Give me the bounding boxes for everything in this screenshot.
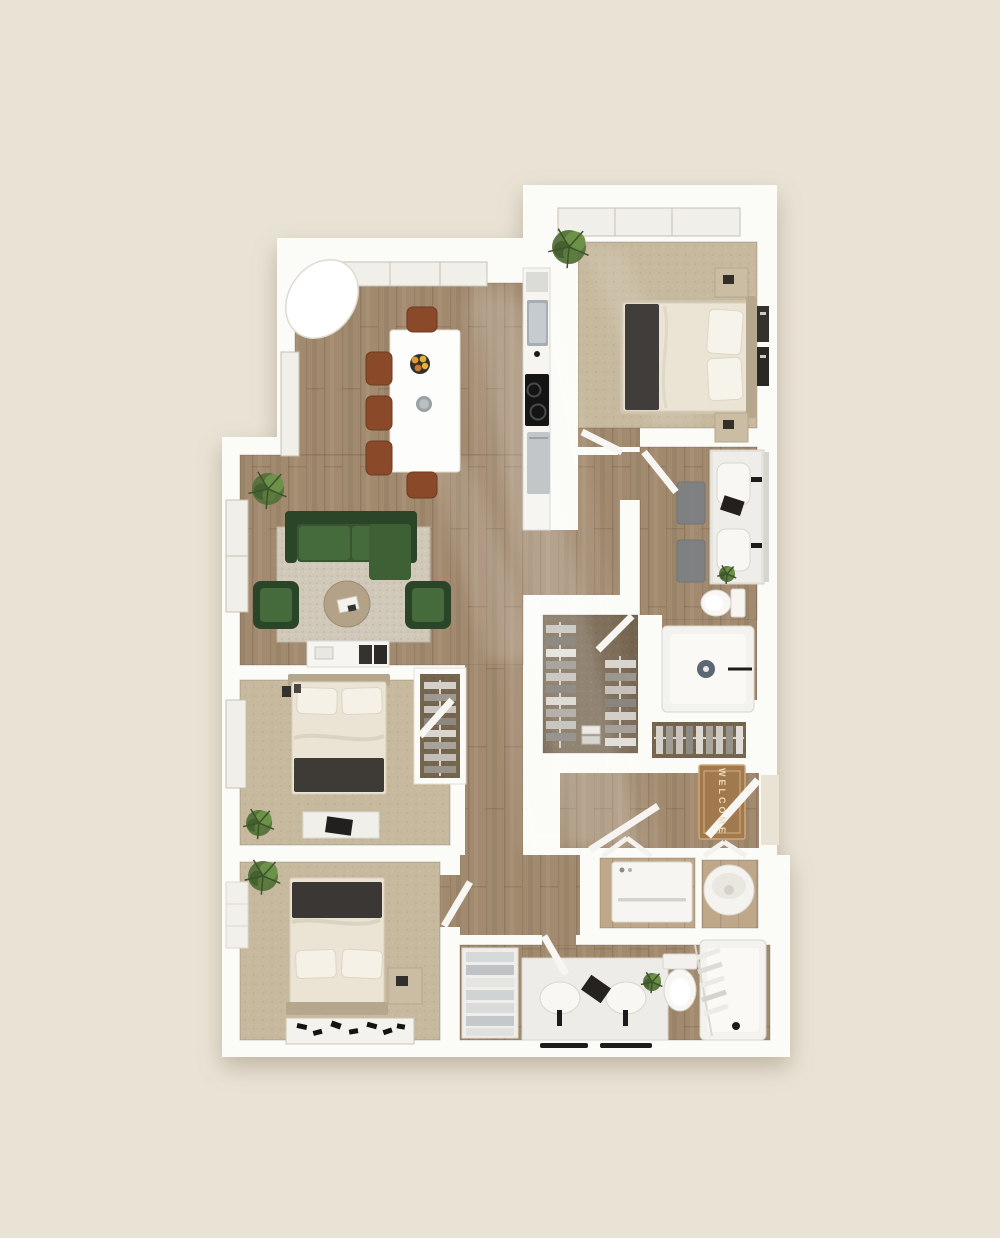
hanging-clothes xyxy=(605,660,636,668)
hanging-clothes xyxy=(605,738,636,746)
washer-control xyxy=(628,868,632,872)
bath2-sink xyxy=(540,982,580,1014)
hanging-clothes xyxy=(686,726,693,754)
bed2-window xyxy=(226,700,246,788)
bath-mat xyxy=(677,482,705,524)
folded-clothes xyxy=(582,726,600,734)
water-heater-cap xyxy=(724,885,734,895)
plant-leaf xyxy=(651,982,652,993)
bath1-faucet xyxy=(751,477,762,482)
bed2-pillow xyxy=(342,687,383,714)
bath1-backsplash xyxy=(764,452,769,582)
hanging-clothes xyxy=(424,742,456,749)
wall-art xyxy=(282,686,291,697)
hanging-clothes xyxy=(546,697,576,705)
dining-chair xyxy=(366,396,392,430)
bath2-tub-faucet xyxy=(732,1022,740,1030)
bath2-toilet-seat xyxy=(670,978,690,1006)
bath2-tub-inner xyxy=(707,948,759,1032)
bed1-pillow xyxy=(707,357,743,401)
hanging-clothes xyxy=(546,637,576,645)
dining-chair xyxy=(407,472,437,498)
bed3-dresser xyxy=(226,882,248,948)
bath2-toilet-tank xyxy=(663,954,697,969)
sofa-arm xyxy=(285,511,297,563)
fruit xyxy=(420,356,427,363)
hanging-clothes xyxy=(605,725,636,733)
floor-plan xyxy=(0,0,1000,1238)
hanging-clothes xyxy=(706,726,713,754)
hanging-clothes xyxy=(546,649,576,657)
sofa-cushion xyxy=(299,526,350,560)
bath1-toilet-seat xyxy=(705,595,723,611)
nightstand-item xyxy=(723,275,734,284)
towel-bar xyxy=(600,1043,652,1048)
bath1-doorway-patch xyxy=(618,452,642,500)
hanging-clothes xyxy=(546,721,576,729)
dishwasher xyxy=(527,432,550,494)
armchair-cushion xyxy=(260,588,292,622)
bath2-faucet xyxy=(623,1010,628,1026)
hanging-clothes xyxy=(666,726,673,754)
towel-stack xyxy=(466,952,514,962)
washer-control xyxy=(620,868,625,873)
washer-door-seam xyxy=(618,898,686,902)
floor-plan-stage: WELCOME xyxy=(0,0,1000,1238)
towel-stack xyxy=(466,990,514,1000)
bed1-blanket xyxy=(625,304,659,410)
sofa-chaise xyxy=(369,524,411,580)
bed1-window xyxy=(558,208,740,236)
table-plate-inner xyxy=(419,399,429,409)
folded-clothes xyxy=(582,736,600,744)
kitchen-side-window xyxy=(281,352,299,456)
armchair-cushion xyxy=(412,588,444,622)
hanging-clothes xyxy=(605,673,636,681)
kitchen-upper-cabinet xyxy=(526,272,548,292)
hanging-clothes xyxy=(676,726,683,754)
wall-art xyxy=(757,306,769,342)
console-speaker xyxy=(374,645,387,664)
dining-chair xyxy=(407,307,437,332)
bed3-pillow xyxy=(341,949,382,979)
fruit xyxy=(422,363,428,369)
console-speaker xyxy=(359,645,372,664)
wall-art xyxy=(757,347,769,386)
towel-bar xyxy=(540,1043,588,1048)
nightstand-item xyxy=(396,976,408,986)
bath1-sink xyxy=(717,529,750,571)
cooktop xyxy=(525,374,549,426)
hanging-clothes xyxy=(716,726,723,754)
towel-stack xyxy=(466,965,514,975)
bed3-headboard xyxy=(286,1002,388,1015)
hanging-clothes xyxy=(546,625,576,633)
plant-leaf xyxy=(726,574,727,584)
hanging-clothes xyxy=(424,754,456,761)
towel-stack xyxy=(466,1003,514,1013)
bed2-pillow xyxy=(297,687,338,714)
wall-art xyxy=(294,684,301,693)
hanging-clothes xyxy=(605,699,636,707)
hanging-clothes xyxy=(546,733,576,741)
towel-stack xyxy=(466,1028,514,1036)
bath1-faucet xyxy=(751,543,762,548)
hanging-clothes xyxy=(696,726,703,754)
hanging-clothes xyxy=(546,685,576,693)
dining-chair xyxy=(366,352,392,385)
hanging-clothes xyxy=(546,661,576,669)
hanging-clothes xyxy=(605,686,636,694)
bath2-sink xyxy=(606,982,646,1014)
kitchen-faucet xyxy=(534,351,540,357)
bed2-blanket xyxy=(294,758,384,792)
bath2-faucet xyxy=(557,1010,562,1026)
bed3-pillow xyxy=(296,949,337,978)
nightstand-item xyxy=(723,420,734,429)
wall-art-detail xyxy=(760,312,766,315)
hanging-clothes xyxy=(656,726,663,754)
hanging-clothes xyxy=(546,673,576,681)
fruit xyxy=(415,365,422,372)
lower-hall-floor xyxy=(460,855,580,935)
console-decor xyxy=(315,647,333,659)
bath-mat xyxy=(677,540,705,582)
kitchen-sink-basin xyxy=(529,303,546,343)
entry-door-gap xyxy=(761,775,779,845)
towel-stack xyxy=(466,1016,514,1026)
dining-chair xyxy=(366,441,392,475)
bed3-blanket xyxy=(292,882,382,918)
fruit xyxy=(412,357,419,364)
bath1-toilet-tank xyxy=(731,589,745,617)
hanging-clothes xyxy=(726,726,733,754)
hanging-clothes xyxy=(736,726,743,754)
hanging-clothes xyxy=(424,682,456,689)
bed1-pillow xyxy=(707,309,744,355)
hanging-clothes xyxy=(546,709,576,717)
hanging-clothes xyxy=(424,766,456,773)
hanging-clothes xyxy=(605,712,636,720)
towel-stack xyxy=(466,978,514,987)
wall-art-detail xyxy=(760,355,766,358)
bed1-headboard xyxy=(746,296,756,418)
tub-drain-cap xyxy=(703,666,709,672)
